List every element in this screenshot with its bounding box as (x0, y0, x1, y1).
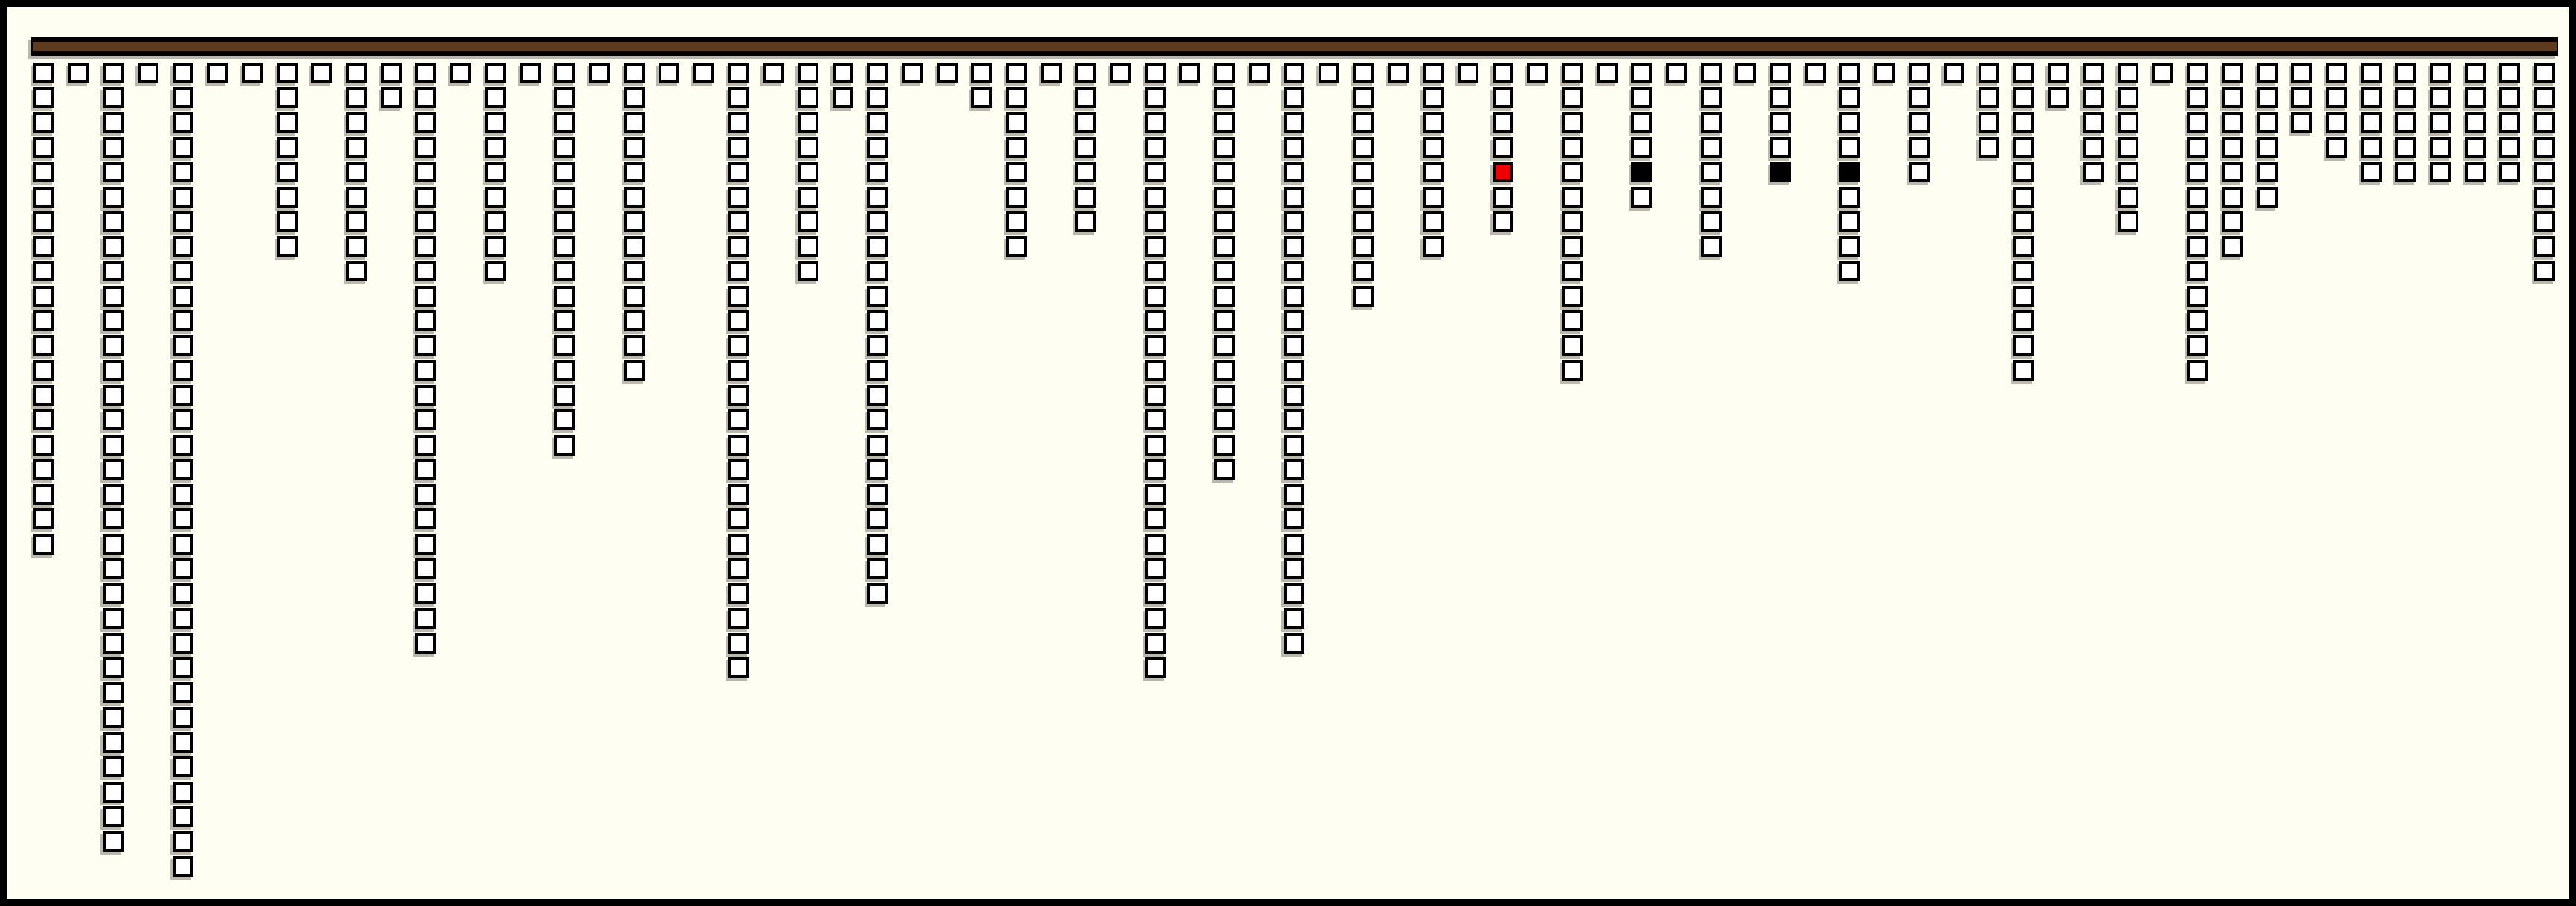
unit-square (450, 63, 471, 83)
unit-square (1145, 459, 1166, 480)
unit-square (1493, 187, 1513, 208)
unit-square (1770, 63, 1791, 83)
unit-square (659, 63, 679, 83)
unit-square (624, 63, 645, 83)
unit-square (33, 63, 54, 83)
unit-square (2222, 137, 2243, 158)
unit-square (33, 360, 54, 381)
unit-square (1179, 63, 1200, 83)
unit-square (2118, 63, 2138, 83)
unit-square (867, 583, 888, 604)
unit-square (798, 112, 818, 133)
unit-square (346, 187, 367, 208)
unit-square (277, 63, 298, 83)
unit-square (728, 435, 749, 456)
unit-square (1493, 87, 1513, 108)
unit-square (1735, 63, 1756, 83)
unit-square (1701, 63, 1722, 83)
unit-square (2361, 63, 2382, 83)
unit-square (2187, 87, 2208, 108)
unit-square (1701, 236, 1722, 257)
unit-square (1597, 63, 1618, 83)
unit-square (103, 608, 124, 629)
unit-square (1423, 63, 1444, 83)
unit-square (1075, 87, 1096, 108)
unit-square (1284, 261, 1304, 281)
unit-square (1145, 633, 1166, 654)
unit-square (728, 608, 749, 629)
unit-square (728, 558, 749, 579)
unit-square (2187, 211, 2208, 232)
unit-square (2534, 112, 2555, 133)
unit-square (2118, 162, 2138, 182)
unit-square (103, 435, 124, 456)
unit-square (68, 63, 89, 83)
unit-square (1458, 63, 1478, 83)
unit-square (1562, 211, 1583, 232)
unit-square (554, 112, 575, 133)
unit-square (1423, 236, 1444, 257)
unit-square (554, 310, 575, 331)
unit-square (1145, 385, 1166, 406)
unit-square (2395, 137, 2416, 158)
unit-square (1423, 187, 1444, 208)
unit-square (798, 211, 818, 232)
unit-square (1839, 187, 1860, 208)
unit-square (2187, 112, 2208, 133)
unit-square (415, 335, 436, 356)
unit-square (728, 385, 749, 406)
unit-square (1214, 435, 1235, 456)
unit-square (2083, 63, 2104, 83)
unit-square (1770, 112, 1791, 133)
unit-square (2430, 63, 2451, 83)
unit-square (624, 261, 645, 281)
unit-square (1562, 286, 1583, 307)
unit-square (1214, 286, 1235, 307)
unit-square (173, 484, 193, 505)
black-cell (1839, 162, 1860, 182)
unit-square (2395, 112, 2416, 133)
unit-square (728, 236, 749, 257)
unit-square (173, 137, 193, 158)
unit-square (2118, 137, 2138, 158)
unit-square (2534, 63, 2555, 83)
unit-square (207, 63, 228, 83)
unit-square (1075, 162, 1096, 182)
unit-square (173, 435, 193, 456)
unit-square (103, 484, 124, 505)
unit-square (415, 162, 436, 182)
unit-square (1284, 187, 1304, 208)
unit-square (277, 211, 298, 232)
unit-square (485, 112, 506, 133)
unit-square (1423, 162, 1444, 182)
unit-square (1353, 286, 1374, 307)
unit-square (1214, 211, 1235, 232)
unit-square (415, 633, 436, 654)
unit-square (1075, 63, 1096, 83)
unit-square (277, 137, 298, 158)
unit-square (103, 831, 124, 852)
unit-square (867, 534, 888, 555)
unit-square (173, 112, 193, 133)
unit-square (554, 409, 575, 430)
unit-square (1874, 63, 1895, 83)
unit-square (1770, 137, 1791, 158)
unit-square (728, 211, 749, 232)
unit-square (1214, 187, 1235, 208)
unit-square (173, 385, 193, 406)
unit-square (103, 732, 124, 753)
unit-square (2152, 63, 2173, 83)
unit-square (1284, 633, 1304, 654)
unit-square (867, 261, 888, 281)
unit-square (346, 112, 367, 133)
unit-square (173, 360, 193, 381)
unit-square (624, 87, 645, 108)
unit-square (1006, 63, 1027, 83)
unit-square (1839, 87, 1860, 108)
unit-square (867, 484, 888, 505)
unit-square (415, 63, 436, 83)
unit-square (415, 261, 436, 281)
unit-square (311, 63, 332, 83)
unit-square (1423, 87, 1444, 108)
unit-square (2187, 63, 2208, 83)
unit-square (485, 211, 506, 232)
unit-square (728, 335, 749, 356)
unit-square (33, 162, 54, 182)
unit-square (415, 558, 436, 579)
unit-square (1909, 162, 1930, 182)
unit-square (1353, 236, 1374, 257)
unit-square (2361, 162, 2382, 182)
unit-square (1145, 310, 1166, 331)
unit-square (1284, 310, 1304, 331)
unit-square (2361, 112, 2382, 133)
unit-square (2291, 63, 2312, 83)
unit-square (1666, 63, 1687, 83)
unit-square (103, 162, 124, 182)
unit-square (867, 87, 888, 108)
unit-square (867, 435, 888, 456)
unit-square (1631, 112, 1652, 133)
unit-square (485, 63, 506, 83)
unit-square (103, 385, 124, 406)
unit-square (103, 211, 124, 232)
unit-square (2499, 137, 2520, 158)
unit-square (624, 112, 645, 133)
unit-square (867, 162, 888, 182)
unit-square (415, 112, 436, 133)
unit-square (728, 459, 749, 480)
unit-square (2013, 87, 2034, 108)
unit-square (624, 360, 645, 381)
unit-square (520, 63, 541, 83)
unit-square (798, 187, 818, 208)
unit-square (2499, 63, 2520, 83)
unit-square (1353, 261, 1374, 281)
unit-square (554, 261, 575, 281)
unit-square (1284, 385, 1304, 406)
unit-square (2048, 63, 2069, 83)
unit-square (1493, 211, 1513, 232)
unit-square (2465, 63, 2486, 83)
unit-square (1562, 137, 1583, 158)
unit-square (381, 63, 402, 83)
unit-square (1145, 63, 1166, 83)
unit-square (173, 508, 193, 529)
unit-square (173, 286, 193, 307)
unit-square (1353, 112, 1374, 133)
unit-square (1214, 137, 1235, 158)
unit-square (2222, 211, 2243, 232)
unit-square (346, 63, 367, 83)
unit-square (2013, 112, 2034, 133)
unit-square (624, 310, 645, 331)
unit-square (173, 782, 193, 803)
black-cell (1770, 162, 1791, 182)
unit-square (33, 459, 54, 480)
unit-square (2048, 87, 2069, 108)
unit-square (554, 63, 575, 83)
unit-square (1909, 112, 1930, 133)
unit-square (554, 435, 575, 456)
unit-square (277, 187, 298, 208)
unit-square (2118, 187, 2138, 208)
unit-square (485, 137, 506, 158)
unit-square (2499, 87, 2520, 108)
unit-square (1839, 211, 1860, 232)
unit-square (103, 409, 124, 430)
unit-square (2257, 137, 2278, 158)
black-cell (1631, 162, 1652, 182)
unit-square (1145, 286, 1166, 307)
unit-square (867, 558, 888, 579)
unit-square (554, 87, 575, 108)
unit-square (1839, 261, 1860, 281)
unit-square (1145, 583, 1166, 604)
unit-square (485, 236, 506, 257)
unit-square (1493, 63, 1513, 83)
unit-square (2465, 137, 2486, 158)
unit-square (1701, 187, 1722, 208)
unit-square (1110, 63, 1131, 83)
unit-square (2187, 335, 2208, 356)
unit-square (554, 137, 575, 158)
unit-square (728, 310, 749, 331)
unit-square (103, 137, 124, 158)
unit-square (485, 87, 506, 108)
unit-square (728, 87, 749, 108)
unit-square (2465, 162, 2486, 182)
unit-square (173, 335, 193, 356)
unit-square (2013, 335, 2034, 356)
unit-square (728, 657, 749, 678)
unit-square (728, 286, 749, 307)
unit-square (833, 63, 853, 83)
unit-square (277, 112, 298, 133)
unit-square (1284, 236, 1304, 257)
unit-square (2257, 187, 2278, 208)
unit-square (1701, 211, 1722, 232)
unit-square (2083, 87, 2104, 108)
unit-square (1284, 87, 1304, 108)
unit-square (1353, 87, 1374, 108)
unit-square (2013, 63, 2034, 83)
unit-square (33, 409, 54, 430)
unit-square (728, 261, 749, 281)
unit-square (833, 87, 853, 108)
unit-square (1805, 63, 1826, 83)
unit-square (173, 236, 193, 257)
unit-square (173, 707, 193, 728)
unit-square (554, 335, 575, 356)
unit-square (173, 558, 193, 579)
unit-square (2430, 87, 2451, 108)
unit-square (173, 534, 193, 555)
unit-square (1284, 137, 1304, 158)
unit-square (33, 385, 54, 406)
unit-square (1284, 112, 1304, 133)
unit-square (2430, 137, 2451, 158)
unit-square (2326, 137, 2347, 158)
unit-square (1839, 112, 1860, 133)
unit-square (1562, 236, 1583, 257)
unit-square (173, 63, 193, 83)
unit-square (2326, 87, 2347, 108)
unit-square (2187, 187, 2208, 208)
unit-square (415, 534, 436, 555)
unit-square (554, 236, 575, 257)
unit-square (173, 756, 193, 777)
unit-square (937, 63, 958, 83)
unit-square (1388, 63, 1409, 83)
unit-square (2222, 63, 2243, 83)
unit-square (103, 187, 124, 208)
unit-square (867, 360, 888, 381)
unit-square (624, 286, 645, 307)
unit-square (2361, 137, 2382, 158)
unit-square (867, 211, 888, 232)
unit-square (33, 87, 54, 108)
unit-square (2395, 63, 2416, 83)
unit-square (33, 534, 54, 555)
unit-square (485, 187, 506, 208)
unit-square (1979, 112, 1999, 133)
unit-square (2465, 112, 2486, 133)
unit-square (103, 583, 124, 604)
unit-square (2361, 87, 2382, 108)
unit-square (415, 310, 436, 331)
unit-square (103, 112, 124, 133)
unit-square (554, 385, 575, 406)
unit-square (1353, 187, 1374, 208)
unit-square (415, 459, 436, 480)
unit-square (173, 310, 193, 331)
unit-square (346, 261, 367, 281)
unit-square (867, 335, 888, 356)
unit-square (1145, 558, 1166, 579)
unit-square (103, 286, 124, 307)
unit-square (1423, 211, 1444, 232)
unit-square (173, 187, 193, 208)
unit-square (1284, 286, 1304, 307)
unit-square (1284, 608, 1304, 629)
unit-square (2326, 63, 2347, 83)
unit-square (728, 137, 749, 158)
unit-square (103, 310, 124, 331)
unit-square (415, 236, 436, 257)
unit-square (173, 732, 193, 753)
unit-square (173, 608, 193, 629)
unit-square (33, 335, 54, 356)
unit-square (798, 63, 818, 83)
unit-square (1214, 261, 1235, 281)
unit-square (2257, 63, 2278, 83)
unit-square (1075, 187, 1096, 208)
unit-square (624, 137, 645, 158)
unit-square (1214, 385, 1235, 406)
unit-square (2534, 211, 2555, 232)
unit-square (1214, 409, 1235, 430)
unit-square (103, 707, 124, 728)
unit-square (728, 162, 749, 182)
unit-square (728, 360, 749, 381)
unit-square (2465, 87, 2486, 108)
unit-square (2534, 162, 2555, 182)
unit-square (415, 187, 436, 208)
unit-square (867, 508, 888, 529)
unit-square (867, 385, 888, 406)
unit-square (1562, 112, 1583, 133)
unit-square (33, 137, 54, 158)
unit-square (1701, 87, 1722, 108)
unit-square (1214, 112, 1235, 133)
unit-square (103, 360, 124, 381)
unit-square (867, 112, 888, 133)
unit-square (728, 633, 749, 654)
unit-square (728, 187, 749, 208)
unit-square (554, 360, 575, 381)
unit-square (103, 756, 124, 777)
unit-square (2187, 360, 2208, 381)
unit-square (173, 633, 193, 654)
unit-square (346, 87, 367, 108)
unit-square (624, 187, 645, 208)
unit-square (1006, 162, 1027, 182)
unit-square (1145, 87, 1166, 108)
unit-square (2118, 87, 2138, 108)
unit-square (798, 87, 818, 108)
unit-square (1041, 63, 1062, 83)
unit-square (554, 211, 575, 232)
unit-square (2187, 137, 2208, 158)
unit-square (867, 286, 888, 307)
unit-square (798, 261, 818, 281)
unit-square (2013, 310, 2034, 331)
unit-square (1145, 534, 1166, 555)
unit-square (1909, 137, 1930, 158)
unit-square (2222, 162, 2243, 182)
unit-square (173, 682, 193, 703)
unit-square (33, 435, 54, 456)
unit-square (624, 236, 645, 257)
unit-square (2534, 187, 2555, 208)
unit-square (867, 459, 888, 480)
unit-square (415, 583, 436, 604)
